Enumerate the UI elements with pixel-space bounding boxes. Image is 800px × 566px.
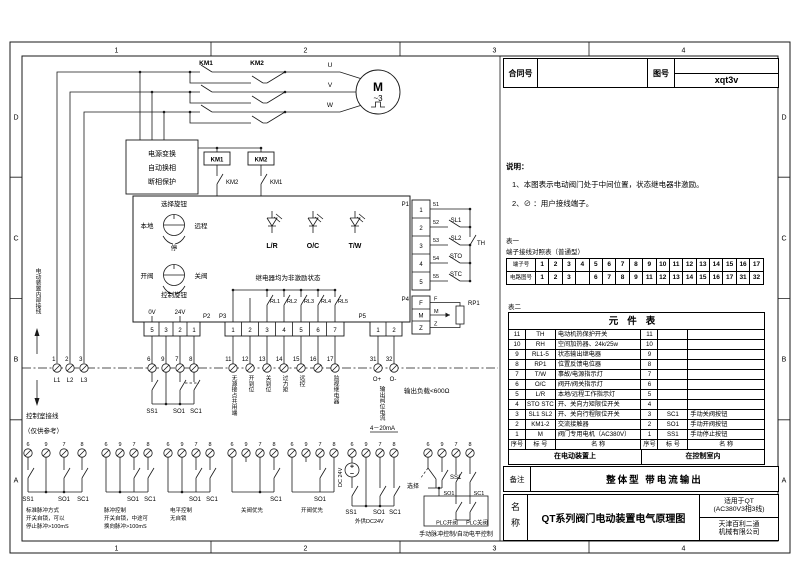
g4-sc1: SC1: [270, 497, 282, 503]
stop-label: 停: [171, 243, 178, 252]
terminal-number: 8: [208, 442, 211, 448]
g7-caption: 手动脉冲控制/自动电平控制: [419, 530, 493, 538]
table2-cell: [658, 330, 688, 339]
terminal-number: 6: [166, 442, 169, 448]
table1-cell: 15: [696, 272, 709, 284]
table1-cell: 2: [548, 259, 561, 271]
table2-row: 6O/C阀开/阀关指示灯6: [509, 380, 764, 390]
phase-w-label: W: [327, 102, 334, 109]
terminal-symbol: [331, 364, 339, 372]
apply-line2: (AC380V3相3线): [714, 506, 765, 515]
km2-coil-label: KM2: [255, 158, 268, 164]
junction-dot: [469, 208, 472, 211]
terminal-number: 9: [304, 442, 307, 448]
stc-label: STC: [450, 272, 463, 278]
tw-lamp-icon: [350, 211, 365, 233]
notes: 说明： 1、本图表示电动阀门处于中间位置，状态继电器非激励。 2、⊘ ：用户接线…: [506, 161, 778, 217]
table2-row: 序号标 号名 称序号标 号名 称: [509, 440, 764, 450]
terminal-number: 31: [370, 357, 377, 363]
table2-cell: RP1: [526, 360, 556, 369]
wire-53: 53: [433, 238, 439, 244]
terminal-number: 11: [225, 357, 232, 363]
table2-cell: 交流接触器: [556, 420, 642, 429]
table1-row: 端子号1234567891011121314151617: [507, 259, 763, 271]
terminal-number: 15: [293, 357, 300, 363]
g5-so1: SO1: [314, 497, 327, 503]
junction-dot: [438, 487, 441, 490]
note-item: 1、本图表示电动阀门处于中间位置，状态继电器非激励。: [512, 179, 778, 190]
generated-terminals: 1L12L23L3697811无源接点共用端12开到位13关到位14过力矩15远…: [24, 71, 474, 508]
table2-cell: 状态输出继电器: [556, 350, 642, 359]
drawing-no-value: xqt3v: [675, 74, 778, 88]
junction-dot: [151, 91, 154, 94]
terminal-symbol: [288, 449, 296, 457]
table2-cell: [658, 400, 688, 409]
g6-caption: 外供DC24V: [355, 517, 384, 525]
table1-cell: 12: [656, 272, 669, 284]
zero-volt-label: 0V: [148, 310, 155, 316]
table2-cell: 9: [509, 350, 526, 359]
output-current-range: 4－20mA: [370, 426, 395, 432]
terminal-symbol: [452, 449, 460, 457]
table2-cell: 4: [509, 400, 526, 409]
table1-cell: 31: [736, 272, 749, 284]
grid-row-label: D: [13, 115, 18, 122]
table1-cell: 14: [682, 272, 695, 284]
table2-rows: 11TH电动机热保护开关1110RH空间加热器、24k/25w109RL1-5状…: [509, 330, 764, 450]
company-line1: 天津百利二通: [719, 521, 760, 530]
terminal-symbol: [376, 449, 384, 457]
terminal-symbol: [116, 449, 124, 457]
table2-row: 9RL1-5状态输出继电器9: [509, 350, 764, 360]
table2-cell: 阀开/阀关指示灯: [556, 380, 642, 389]
g1-sc1: SC1: [77, 497, 89, 503]
drawing-no-label: 图号: [648, 59, 675, 87]
table1-cell: 5: [589, 259, 602, 271]
table1-cell: 16: [736, 259, 749, 271]
km2-interlock-label: KM2: [226, 180, 239, 186]
table1-cell: 6: [602, 259, 615, 271]
table2-cell: 标 号: [658, 440, 688, 449]
g3-sc1: SC1: [206, 497, 218, 503]
phase-terminal-label: L3: [81, 378, 88, 384]
table2-cell: 1: [641, 430, 658, 439]
junction-dot: [283, 289, 286, 292]
table1-cell: 17: [749, 259, 762, 271]
p2-label: P2: [203, 314, 211, 320]
terminal-symbol: [164, 449, 172, 457]
terminal-number: 9: [440, 442, 443, 448]
table2-cell: 名 称: [688, 440, 764, 449]
table2-cell: O/C: [526, 380, 556, 389]
f-wire-label: F: [434, 297, 438, 303]
terminal-symbol: [24, 449, 32, 457]
table2-label: 表二: [508, 301, 765, 311]
plc-close-label: PLC关阀: [466, 519, 488, 527]
table2-cell: 6: [641, 380, 658, 389]
wire-55: 55: [433, 274, 439, 280]
terminal-symbol: [53, 364, 61, 372]
grid-col-label: 4: [682, 48, 686, 55]
grid-row-label: C: [13, 236, 18, 243]
table1-label: 表一: [506, 235, 764, 245]
g1-ss1: SS1: [22, 497, 34, 503]
table2-cell: 序号: [641, 440, 658, 449]
24v-label: 24V: [175, 310, 186, 316]
control-knob-label: 控制旋钮: [161, 290, 188, 299]
rl2-label: RL2: [287, 299, 297, 305]
connector-labels: P2 P3 P5 P1 P4 0V 24V 5 3 2 1 1 2 3 4 5 …: [148, 202, 423, 334]
table2-cell: 电动机热保护开关: [556, 330, 642, 339]
terminal-number: 6: [147, 357, 151, 363]
sl1-label: SL1: [451, 218, 462, 224]
table2-cell: 标 号: [526, 440, 556, 449]
terminal-symbol: [246, 364, 254, 372]
table2-row: 7T/W事故/电源指示灯7: [509, 370, 764, 380]
junction-dot: [469, 262, 472, 265]
table2-cell: 空间加热器、24k/25w: [556, 340, 642, 349]
sl2-label: SL2: [451, 236, 462, 242]
terminal-symbol: [144, 449, 152, 457]
open-valve-label: 开阀: [141, 271, 154, 280]
phase-terminal-label: L2: [67, 378, 74, 384]
terminal-number: 16: [310, 357, 317, 363]
table2-cell: 4: [641, 400, 658, 409]
sto-label: STO: [450, 254, 463, 260]
terminal-number: 3: [79, 357, 83, 363]
table1-cell: 17: [722, 272, 735, 284]
selector-knob-label: 选择旋钮: [161, 199, 188, 208]
table2-cell: 名 称: [556, 440, 642, 449]
table1-cell: 11: [642, 272, 655, 284]
g1-so1: SO1: [58, 497, 71, 503]
junction-dot: [45, 491, 48, 494]
terminal-symbol: [102, 449, 110, 457]
terminal-number: 6: [350, 442, 353, 448]
table1-title: 端子接线对照表（普通型）: [506, 246, 764, 256]
table2-cell: 手动停止按钮: [688, 430, 764, 439]
terminal-symbol: [162, 364, 170, 372]
junction-dot: [260, 147, 263, 150]
junction-dot: [63, 491, 66, 494]
grid-row-label: A: [14, 478, 19, 485]
grid-col-label: 1: [115, 48, 119, 55]
remote-label: 远程: [195, 221, 209, 230]
oc-lamp-icon: [308, 211, 323, 233]
terminal-number: 6: [230, 442, 233, 448]
table1-grid: 端子号1234567891011121314151617电路图号12367891…: [506, 258, 764, 285]
table2-cell: 5: [509, 390, 526, 399]
table2-cell: 11: [509, 330, 526, 339]
terminal-symbol: [42, 449, 50, 457]
terminal-symbol: [176, 364, 184, 372]
th-label: TH: [477, 241, 485, 247]
remark-value: 整体型 带电流输出: [531, 467, 778, 491]
terminal-function-label: 远控: [298, 374, 305, 388]
km1-contact-label: KM1: [199, 60, 213, 67]
table2-row: 4STO STC开、关向力矩限位开关4: [509, 400, 764, 410]
table2-cell: [658, 360, 688, 369]
name-label: 名称: [504, 495, 528, 540]
drawing-sheet: 1 2 3 4 1 2 3 4 D C B A D C B A KM1 KM2 …: [0, 0, 800, 566]
notes-title: 说明：: [506, 161, 778, 172]
relay-note: 继电器均为非激励状态: [256, 273, 322, 282]
table2-cell: 开、关向力矩限位开关: [556, 400, 642, 409]
grid-row-label: C: [781, 236, 786, 243]
table2-row: 3SL1 SL2开、关向行程限位开关3SC1手动关阀按钮: [509, 410, 764, 420]
km2-contact-label: KM2: [250, 60, 264, 67]
p4-pin: Z: [419, 326, 423, 332]
terminal-symbol: [130, 449, 138, 457]
terminal-symbol: [60, 449, 68, 457]
table1-header-cell: 电路图号: [507, 272, 535, 284]
terminal-function-label: 过力矩: [281, 374, 288, 394]
component-table: 表二 元件表 11TH电动机热保护开关1110RH空间加热器、24k/25w10…: [508, 301, 765, 465]
table1-cell: 10: [656, 259, 669, 271]
wiring-option-groups: SS1 SO1 SC1 标准脉冲方式 开关自锁，可以 停止脉冲>100mS SO…: [22, 462, 493, 538]
terminal-symbol: [206, 449, 214, 457]
g2-so1: SO1: [127, 497, 140, 503]
g1-caption: 停止脉冲>100mS: [26, 522, 69, 530]
p3-label: P3: [219, 314, 227, 320]
output-current-label: 输出阀位电流: [378, 385, 385, 422]
junction-dot: [232, 289, 235, 292]
g1-caption: 标准脉冲方式: [26, 506, 60, 514]
psu-line3: 断相保护: [148, 177, 176, 186]
table2-cell: SL1 SL2: [526, 410, 556, 419]
grid-col-label: 2: [304, 546, 308, 553]
wire-54: 54: [433, 256, 439, 262]
terminal-symbol: [330, 449, 338, 457]
grid-row-label: B: [14, 357, 19, 364]
table2-cell: 开、关向行程限位开关: [556, 410, 642, 419]
junction-dot: [216, 147, 219, 150]
km1-interlock-label: KM1: [270, 180, 283, 186]
junction-dot: [165, 403, 168, 406]
drawing-no-cell: xqt3v: [675, 59, 778, 87]
terminal-symbol: [374, 364, 382, 372]
ss1-label: SS1: [146, 409, 158, 415]
p4-pin: M: [419, 314, 424, 320]
g1-caption: 开关自锁，可以: [26, 514, 65, 522]
table2-row: 2KM1-2交流接触器2SO1手动开阀按钮: [509, 420, 764, 430]
motor-label: M: [373, 80, 383, 94]
table1-cell: 7: [615, 259, 628, 271]
table2-cell: RL1-5: [526, 350, 556, 359]
table2-cell: [688, 380, 764, 389]
table1-cell: 32: [749, 272, 762, 284]
terminal-number: 9: [118, 442, 121, 448]
terminal-number: 32: [386, 357, 393, 363]
remark-block: 备注 整体型 带电流输出: [503, 466, 779, 492]
g7-sc1: SC1: [474, 491, 485, 497]
wire-51: 51: [433, 202, 439, 208]
junction-dot: [163, 111, 166, 114]
drawing-title: QT系列阀门电动装置电气原理图: [528, 495, 700, 540]
table2-cell: [658, 340, 688, 349]
table1-cell: 12: [682, 259, 695, 271]
close-valve-label: 关阀: [195, 271, 208, 280]
table2-row: 10RH空间加热器、24k/25w10: [509, 340, 764, 350]
table2-cell: [688, 400, 764, 409]
lr-lamp-label: L/R: [266, 243, 277, 250]
p1-label: P1: [402, 202, 410, 208]
terminal-symbol: [228, 449, 236, 457]
table2-cell: KM1-2: [526, 420, 556, 429]
output-load-label: 输出负载<600Ω: [404, 386, 450, 395]
terminal-number: 7: [318, 442, 321, 448]
oc-lamp-label: O/C: [307, 243, 319, 250]
terminal-symbol: [256, 449, 264, 457]
junction-dot: [300, 289, 303, 292]
plc-open-label: PLC开阀: [436, 519, 458, 527]
junction-dot: [469, 226, 472, 229]
table2-cell: 3: [509, 410, 526, 419]
terminal-symbol: [314, 364, 322, 372]
table2-cell: 9: [641, 350, 658, 359]
junction-dot: [119, 491, 122, 494]
g7-so1: SO1: [443, 491, 454, 497]
table1-header-cell: 端子号: [507, 259, 535, 271]
table2-row: 1M阀门专用电机（AC380V）1SS1手动停止按钮: [509, 430, 764, 440]
g6-so1: SO1: [373, 510, 386, 516]
g3-caption: 电平控制: [170, 506, 193, 514]
terminal-number: 6: [290, 442, 293, 448]
terminal-number: 13: [259, 357, 266, 363]
power-circuit: [57, 65, 400, 363]
terminal-symbol: [438, 449, 446, 457]
junction-dot: [284, 111, 287, 114]
table2-cell: 7: [641, 370, 658, 379]
table2-cell: 5: [641, 390, 658, 399]
g6-ss1: SS1: [345, 510, 357, 516]
table2-cell: T/W: [526, 370, 556, 379]
table1-cell: 9: [642, 259, 655, 271]
terminal-symbol: [362, 449, 370, 457]
terminal-number: 8: [189, 357, 193, 363]
table2-cell: 8: [641, 360, 658, 369]
contract-label: 合同号: [504, 59, 538, 87]
table2-cell: [658, 390, 688, 399]
table1-cell: 1: [535, 272, 548, 284]
junction-dot: [266, 289, 269, 292]
table1-cell: 4: [575, 259, 588, 271]
internal-wiring-note: 电动装置内部接线: [34, 267, 41, 315]
rl5-label: RL5: [338, 299, 348, 305]
terminal-number: 6: [426, 442, 429, 448]
grid-row-label: B: [782, 357, 787, 364]
terminal-number: 8: [146, 442, 149, 448]
table2-cell: [688, 370, 764, 379]
terminal-symbol: [178, 449, 186, 457]
grid-col-label: 1: [115, 546, 119, 553]
grid-col-label: 2: [304, 48, 308, 55]
phase-u-label: U: [328, 62, 333, 69]
table2-cell: [688, 390, 764, 399]
table1-cell: 16: [709, 272, 722, 284]
rl4-label: RL4: [321, 299, 331, 305]
table1-cell: 7: [602, 272, 615, 284]
rp1-potentiometer: F M Z RP1: [430, 297, 480, 328]
applicable-model: 适用于QT (AC380V3相3线): [700, 495, 778, 518]
grid-row-label: A: [782, 478, 787, 485]
table2-cell: TH: [526, 330, 556, 339]
table1-cell: 11: [669, 259, 682, 271]
grid-row-label: D: [781, 115, 786, 122]
table2-cell: 位置反馈电位器: [556, 360, 642, 369]
terminal-number: 9: [364, 442, 367, 448]
terminal-symbol: [190, 364, 198, 372]
sc1-label: SC1: [190, 409, 202, 415]
table2-cell: [688, 340, 764, 349]
table2-grid: 元件表 11TH电动机热保护开关1110RH空间加热器、24k/25w109RL…: [508, 312, 765, 465]
terminal-number: 8: [392, 442, 395, 448]
table2-cell: 手动开阀按钮: [688, 420, 764, 429]
g6-sc1: SC1: [389, 510, 401, 516]
terminal-symbol: [229, 364, 237, 372]
table2-cell: L/R: [526, 390, 556, 399]
junction-dot: [284, 91, 287, 94]
terminal-number: 6: [104, 442, 107, 448]
drawing-no-upper: [675, 59, 778, 74]
terminal-symbol: [148, 364, 156, 372]
terminal-number: 8: [272, 442, 275, 448]
table1-cell: 6: [589, 272, 602, 284]
terminal-number: 8: [80, 442, 83, 448]
terminal-number: 7: [378, 442, 381, 448]
junction-dot: [189, 91, 192, 94]
table2-title: 元件表: [509, 313, 764, 330]
terminal-symbol: [302, 449, 310, 457]
table2-cell: 7: [509, 370, 526, 379]
terminal-function-label: 监视继电器: [332, 374, 339, 405]
junction-dot: [469, 280, 472, 283]
terminal-number: 7: [132, 442, 135, 448]
table2-cell: STO STC: [526, 400, 556, 409]
terminal-symbol: [390, 364, 398, 372]
table2-cell: 8: [509, 360, 526, 369]
terminal-number: 1: [52, 357, 56, 363]
rl3-label: RL3: [304, 299, 314, 305]
junction-dot: [259, 491, 262, 494]
km1-coil-label: KM1: [211, 158, 224, 164]
g2-sc1: SC1: [144, 497, 156, 503]
table1-cell: 14: [709, 259, 722, 271]
table1-cell: 3: [562, 272, 575, 284]
g3-so1: SO1: [189, 497, 202, 503]
terminal-symbol: [466, 449, 474, 457]
zone-in-control-room: 在控制室内: [642, 450, 764, 464]
terminal-number: 7: [175, 357, 179, 363]
terminal-number: 9: [161, 357, 165, 363]
control-room-note: 控制室接线: [26, 411, 59, 420]
g2-caption: 开关自锁，中途可: [104, 514, 149, 522]
local-label: 本地: [141, 221, 155, 230]
terminal-symbol: [263, 364, 271, 372]
terminal-function-label: 关到位: [264, 374, 271, 393]
terminal-function-label: 无源接点共用端: [230, 375, 237, 417]
terminal-number: 7: [194, 442, 197, 448]
table2-cell: [658, 370, 688, 379]
table2-cell: SO1: [658, 420, 688, 429]
terminal-symbol: [270, 449, 278, 457]
lr-lamp-icon: [267, 211, 282, 233]
phase-terminal-label: L1: [54, 378, 61, 384]
o-plus-label: O+: [373, 377, 382, 383]
table1-cell: 8: [615, 272, 628, 284]
table2-cell: 6: [509, 380, 526, 389]
terminal-number: 7: [454, 442, 457, 448]
